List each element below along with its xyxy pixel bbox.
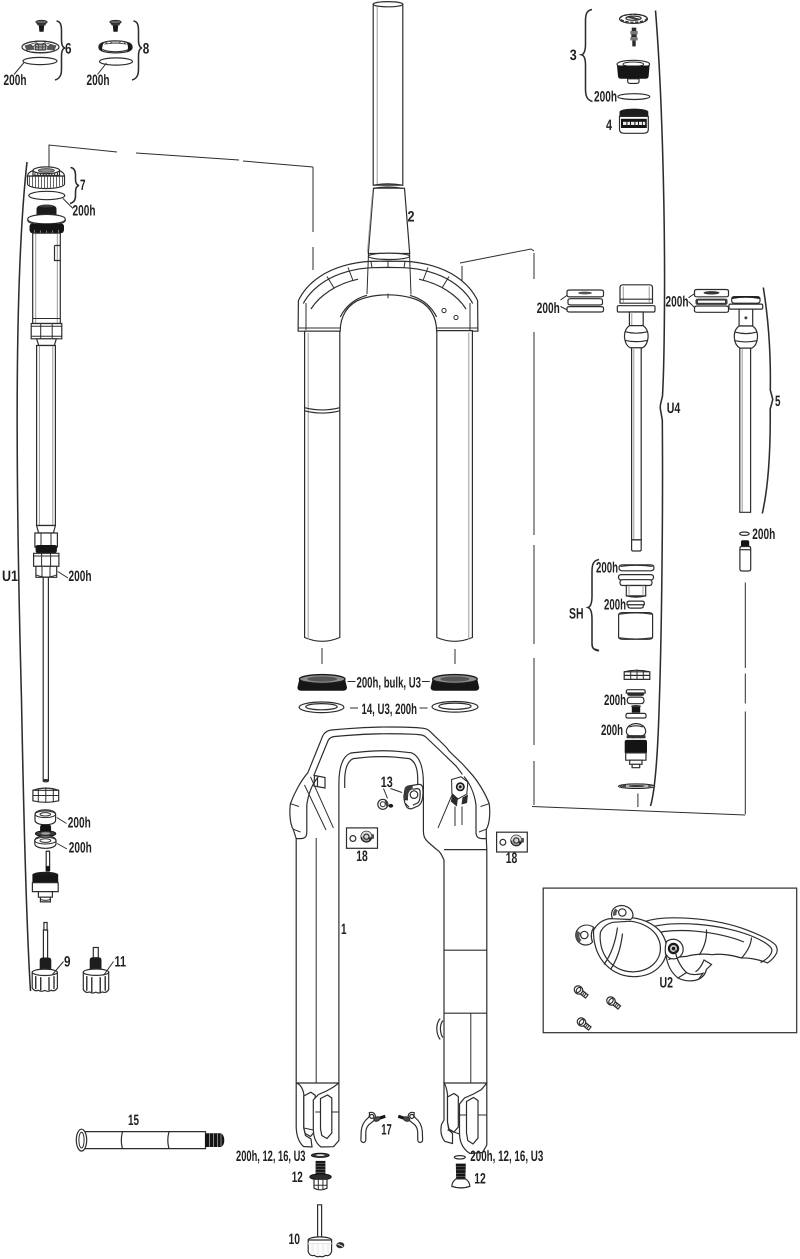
svg-text:200h: 200h bbox=[4, 72, 27, 89]
svg-text:4: 4 bbox=[606, 117, 612, 134]
svg-text:200h: 200h bbox=[73, 203, 96, 220]
svg-text:200h: 200h bbox=[596, 559, 618, 576]
svg-text:U1: U1 bbox=[2, 568, 18, 585]
svg-text:17: 17 bbox=[381, 1121, 392, 1138]
svg-text:200h: 200h bbox=[666, 293, 689, 310]
svg-text:SH: SH bbox=[569, 605, 584, 622]
svg-text:10: 10 bbox=[289, 1231, 301, 1248]
svg-text:200h: 200h bbox=[752, 526, 775, 543]
svg-text:200h, 12, 16, U3: 200h, 12, 16, U3 bbox=[236, 1148, 306, 1165]
svg-text:3: 3 bbox=[570, 47, 577, 64]
svg-text:200h: 200h bbox=[68, 815, 91, 832]
svg-text:200h: 200h bbox=[537, 300, 560, 317]
svg-text:2: 2 bbox=[408, 209, 415, 226]
svg-text:200h, 12, 16, U3: 200h, 12, 16, U3 bbox=[470, 1148, 543, 1165]
svg-text:15: 15 bbox=[128, 1112, 139, 1129]
svg-text:9: 9 bbox=[64, 954, 71, 971]
svg-text:6: 6 bbox=[65, 40, 72, 57]
svg-text:200h: 200h bbox=[594, 89, 617, 106]
svg-text:11: 11 bbox=[115, 954, 127, 971]
svg-text:200h: 200h bbox=[69, 840, 92, 857]
svg-text:200h, bulk, U3: 200h, bulk, U3 bbox=[357, 674, 422, 691]
svg-text:13: 13 bbox=[381, 774, 393, 791]
svg-text:200h: 200h bbox=[604, 692, 626, 709]
svg-text:200h: 200h bbox=[604, 596, 626, 613]
svg-text:12: 12 bbox=[474, 1171, 486, 1188]
svg-text:7: 7 bbox=[80, 177, 86, 194]
svg-text:1: 1 bbox=[341, 921, 347, 938]
svg-text:U2: U2 bbox=[660, 974, 674, 991]
svg-text:U4: U4 bbox=[667, 400, 681, 417]
svg-text:8: 8 bbox=[143, 40, 150, 57]
svg-text:18: 18 bbox=[506, 850, 518, 867]
svg-text:12: 12 bbox=[292, 1169, 303, 1186]
svg-text:18: 18 bbox=[356, 848, 368, 865]
svg-text:200h: 200h bbox=[69, 568, 92, 585]
svg-text:200h: 200h bbox=[87, 72, 110, 89]
svg-text:5: 5 bbox=[775, 393, 781, 410]
svg-text:200h: 200h bbox=[601, 722, 623, 739]
svg-text:14, U3, 200h: 14, U3, 200h bbox=[362, 701, 418, 718]
